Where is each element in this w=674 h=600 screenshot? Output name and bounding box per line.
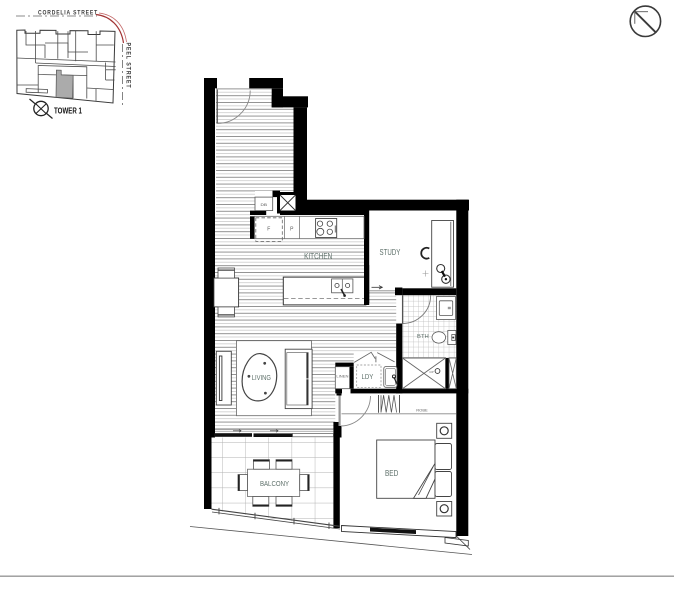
svg-text:BTH: BTH bbox=[417, 334, 429, 340]
svg-text:DB: DB bbox=[261, 203, 268, 207]
svg-text:ROBE: ROBE bbox=[416, 407, 428, 412]
svg-text:BED: BED bbox=[385, 469, 398, 478]
svg-text:LIVING: LIVING bbox=[252, 373, 271, 382]
svg-text:CORDELIA STREET: CORDELIA STREET bbox=[38, 10, 98, 16]
svg-text:TOWER 1: TOWER 1 bbox=[54, 106, 82, 115]
svg-text:LINEN: LINEN bbox=[336, 375, 349, 379]
svg-text:BALCONY: BALCONY bbox=[260, 481, 289, 488]
svg-text:CP: CP bbox=[429, 370, 433, 374]
svg-text:LDY: LDY bbox=[361, 372, 373, 381]
svg-text:PEEL STREET: PEEL STREET bbox=[125, 43, 131, 89]
svg-text:STUDY: STUDY bbox=[380, 248, 401, 257]
svg-text:KITCHEN: KITCHEN bbox=[304, 252, 332, 261]
svg-text:F: F bbox=[267, 226, 270, 232]
